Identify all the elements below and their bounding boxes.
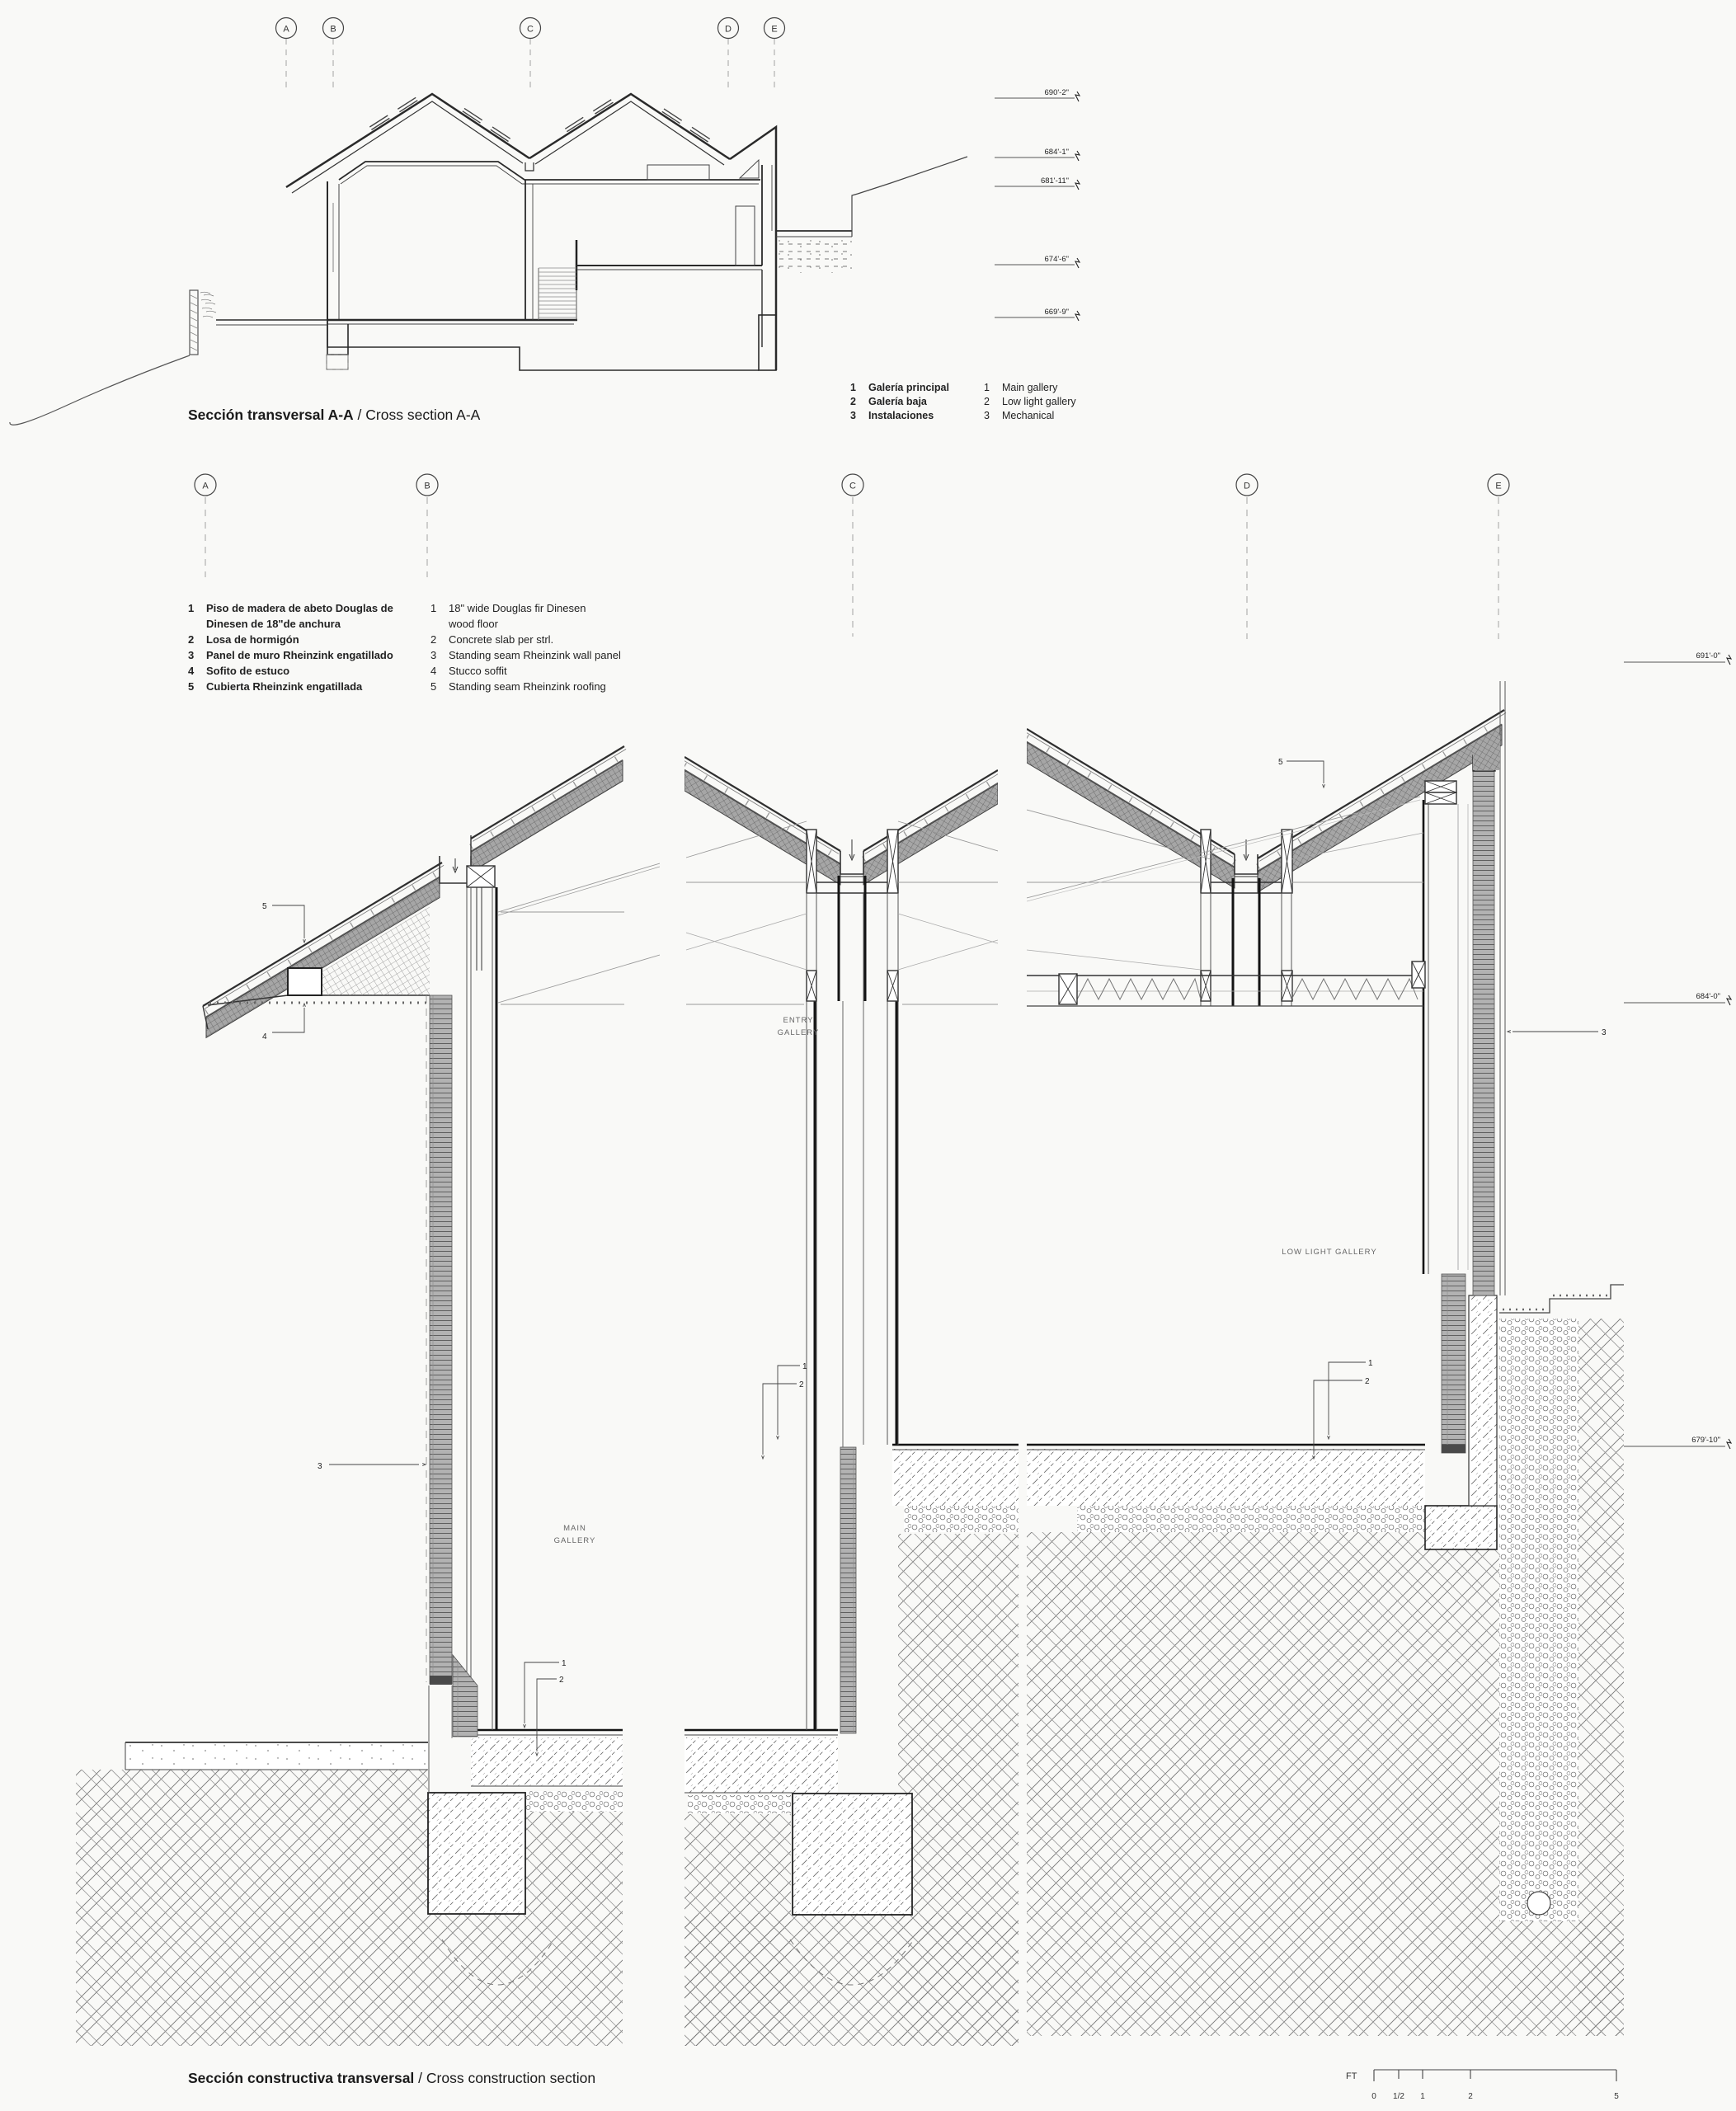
svg-text:1/2: 1/2 xyxy=(1393,2092,1404,2101)
svg-text:Low light gallery: Low light gallery xyxy=(1002,396,1076,407)
svg-text:1: 1 xyxy=(562,1659,567,1668)
svg-text:Sofito de estuco: Sofito de estuco xyxy=(206,665,289,677)
svg-text:5: 5 xyxy=(262,902,267,911)
svg-text:1: 1 xyxy=(984,382,990,393)
svg-text:5: 5 xyxy=(1278,758,1283,767)
svg-text:0: 0 xyxy=(1371,2092,1376,2101)
svg-text:4: 4 xyxy=(430,665,436,677)
svg-text:GALLERY: GALLERY xyxy=(554,1536,596,1545)
svg-text:3: 3 xyxy=(850,410,856,421)
svg-text:C: C xyxy=(527,25,534,35)
svg-text:Instalaciones: Instalaciones xyxy=(868,410,934,421)
svg-text:3: 3 xyxy=(318,1462,322,1471)
svg-text:2: 2 xyxy=(1468,2092,1473,2101)
svg-text:E: E xyxy=(1495,482,1501,491)
svg-text:D: D xyxy=(1244,482,1250,491)
svg-text:2: 2 xyxy=(1365,1377,1370,1386)
svg-text:690'-2": 690'-2" xyxy=(1045,88,1069,97)
svg-text:Sección transversal A-A / Cros: Sección transversal A-A / Cross section … xyxy=(188,407,481,423)
svg-text:Standing seam Rheinzink roofin: Standing seam Rheinzink roofing xyxy=(449,680,606,693)
svg-text:B: B xyxy=(424,482,430,491)
svg-text:5: 5 xyxy=(430,680,436,693)
svg-text:ENTRY: ENTRY xyxy=(783,1016,813,1025)
svg-text:wood floor: wood floor xyxy=(448,618,499,630)
svg-text:Cubierta Rheinzink engatillada: Cubierta Rheinzink engatillada xyxy=(206,680,363,693)
svg-text:2: 2 xyxy=(430,633,436,646)
svg-text:C: C xyxy=(849,482,856,491)
svg-text:Concrete slab per strl.: Concrete slab per strl. xyxy=(449,633,553,646)
svg-text:Standing seam Rheinzink wall p: Standing seam Rheinzink wall panel xyxy=(449,649,621,661)
svg-text:4: 4 xyxy=(188,665,195,677)
svg-text:1: 1 xyxy=(1368,1359,1373,1368)
svg-text:FT: FT xyxy=(1346,2071,1357,2081)
svg-text:Galería baja: Galería baja xyxy=(868,396,928,407)
svg-text:674'-6": 674'-6" xyxy=(1045,255,1069,264)
svg-text:669'-9": 669'-9" xyxy=(1045,308,1069,317)
svg-text:1: 1 xyxy=(802,1362,807,1371)
svg-text:18" wide Douglas fir Dinesen: 18" wide Douglas fir Dinesen xyxy=(449,602,586,614)
svg-text:Sección constructiva transvers: Sección constructiva transversal / Cross… xyxy=(188,2070,595,2086)
svg-text:Piso de madera de abeto Dougla: Piso de madera de abeto Douglas de xyxy=(206,602,393,614)
svg-text:Mechanical: Mechanical xyxy=(1002,410,1054,421)
svg-text:E: E xyxy=(771,25,777,35)
svg-text:2: 2 xyxy=(984,396,990,407)
svg-text:D: D xyxy=(725,25,732,35)
svg-text:A: A xyxy=(283,25,289,35)
svg-text:Main gallery: Main gallery xyxy=(1002,382,1058,393)
svg-text:691'-0": 691'-0" xyxy=(1696,651,1720,661)
svg-text:3: 3 xyxy=(984,410,990,421)
svg-text:2: 2 xyxy=(188,633,194,646)
svg-text:5: 5 xyxy=(188,680,194,693)
svg-text:Dinesen de 18"de anchura: Dinesen de 18"de anchura xyxy=(206,618,341,630)
svg-text:Stucco soffit: Stucco soffit xyxy=(449,665,507,677)
svg-text:684'-1": 684'-1" xyxy=(1045,148,1069,157)
svg-text:2: 2 xyxy=(799,1380,804,1389)
svg-text:679'-10": 679'-10" xyxy=(1691,1436,1720,1445)
svg-text:1: 1 xyxy=(1420,2092,1425,2101)
svg-text:3: 3 xyxy=(430,649,436,661)
svg-text:Panel de muro Rheinzink engati: Panel de muro Rheinzink engatillado xyxy=(206,649,393,661)
svg-text:B: B xyxy=(330,25,336,35)
svg-text:3: 3 xyxy=(1602,1028,1607,1037)
svg-text:GALLERY: GALLERY xyxy=(778,1028,820,1037)
svg-text:5: 5 xyxy=(1614,2092,1619,2101)
svg-text:681'-11": 681'-11" xyxy=(1041,176,1069,186)
svg-text:3: 3 xyxy=(188,649,194,661)
svg-text:MAIN: MAIN xyxy=(563,1524,586,1533)
svg-text:684'-0": 684'-0" xyxy=(1696,992,1720,1001)
svg-text:A: A xyxy=(202,482,209,491)
svg-text:LOW LIGHT GALLERY: LOW LIGHT GALLERY xyxy=(1282,1248,1376,1257)
svg-text:1: 1 xyxy=(430,602,436,614)
svg-text:Galería principal: Galería principal xyxy=(868,382,949,393)
svg-text:1: 1 xyxy=(850,382,856,393)
svg-text:4: 4 xyxy=(262,1032,267,1041)
svg-text:2: 2 xyxy=(850,396,856,407)
svg-text:Losa de hormigón: Losa de hormigón xyxy=(206,633,299,646)
svg-text:2: 2 xyxy=(559,1676,564,1685)
svg-text:1: 1 xyxy=(188,602,194,614)
